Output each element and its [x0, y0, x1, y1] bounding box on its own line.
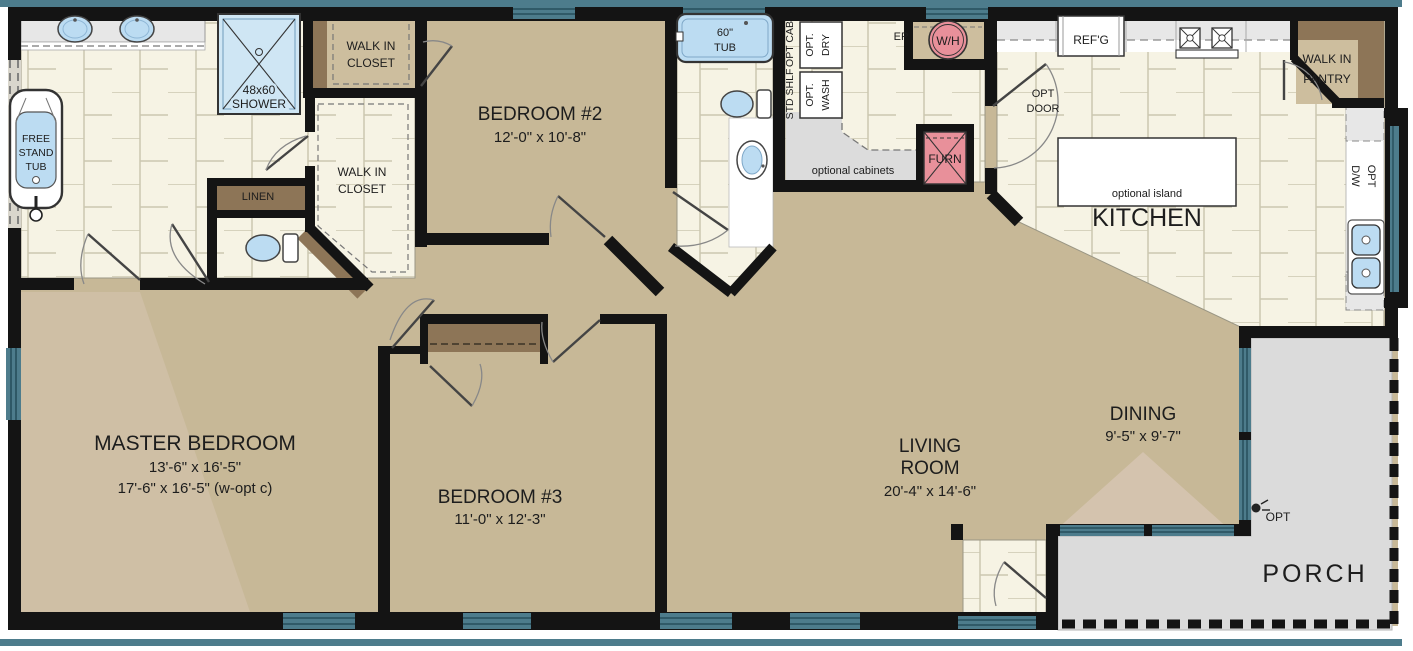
window-living-bottom-2: [790, 613, 860, 629]
window-bedroom3-bottom: [463, 613, 531, 629]
bedroom3-closet-shelf: [428, 324, 540, 352]
living-room-label-1: LIVING: [899, 436, 961, 457]
window-kitchen-bay: [1390, 126, 1399, 292]
opt-door-label-1: OPT: [1032, 88, 1055, 100]
bottom-eave-strip: [0, 639, 1402, 646]
tub60-label-2: TUB: [714, 42, 736, 54]
pantry-label-1: WALK IN: [1303, 52, 1352, 66]
window-dining-right-2: [1239, 440, 1251, 520]
window-dining-right-1: [1239, 348, 1251, 432]
master-bedroom-label: MASTER BEDROOM: [94, 432, 296, 455]
master-bedroom-dim-opt: 17'-6" x 16'-5" (w-opt c): [118, 480, 273, 497]
tub-label-1: FREE: [22, 133, 50, 145]
vanity-sink-icon-2: [120, 16, 154, 42]
master-bedroom-dim: 13'-6" x 16'-5": [149, 459, 241, 476]
water-heater-label: W/H: [936, 34, 959, 48]
dishwasher-label-1: OPT: [1365, 165, 1377, 188]
opt-wash-label-2: WASH: [820, 79, 832, 110]
tub-label-2: STAND: [19, 147, 54, 159]
std-shlf-label: STD SHLF: [784, 69, 796, 120]
bedroom3-dim: 11'-0" x 12'-3": [454, 511, 545, 528]
vanity-sink-icon-1: [58, 16, 92, 42]
walkin-closet-top-label-1: WALK IN: [347, 39, 396, 53]
opt-wash-label-1: OPT.: [804, 83, 816, 106]
shower-label-2: SHOWER: [232, 97, 286, 111]
shower-label-1: 48x60: [243, 83, 276, 97]
bedroom2-dim: 12'-0" x 10'-8": [494, 129, 586, 146]
window-entry-bottom: [958, 616, 1036, 629]
floor-plan: MASTER BEDROOM 13'-6" x 16'-5" 17'-6" x …: [0, 0, 1413, 646]
porch-label: PORCH: [1262, 560, 1367, 588]
opt-cab-label: OPT CAB: [784, 21, 796, 67]
dishwasher-label-2: D/W: [1349, 165, 1361, 187]
tub-label-3: TUB: [26, 161, 47, 173]
opt-door-label-2: DOOR: [1027, 103, 1060, 115]
walkin-closet-top-label-2: CLOSET: [347, 56, 396, 70]
walkin-closet-main-label-2: CLOSET: [338, 182, 387, 196]
window-living-bottom-1: [660, 613, 732, 629]
walkin-closet-main-label-1: WALK IN: [338, 165, 387, 179]
pantry-shelf-right: [1358, 40, 1384, 104]
optional-island-label: optional island: [1112, 188, 1182, 200]
window-bedroom2-top: [513, 4, 575, 19]
fridge-label: REF'G: [1073, 33, 1109, 47]
window-living-porch-1: [1060, 525, 1144, 536]
tub60-label-1: 60": [717, 27, 733, 39]
linen-label: LINEN: [242, 191, 274, 203]
ep-label: EP: [894, 31, 909, 43]
dining-label: DINING: [1110, 404, 1177, 425]
window-master-bottom: [283, 613, 355, 629]
window-utility-top: [926, 4, 988, 19]
floor-plan-page: MASTER BEDROOM 13'-6" x 16'-5" 17'-6" x …: [0, 0, 1413, 646]
living-room-label-2: ROOM: [900, 458, 959, 479]
kitchen-label: KITCHEN: [1092, 204, 1202, 232]
opt-dry-label-2: DRY: [820, 34, 832, 56]
opt-dry-label-1: OPT.: [804, 33, 816, 56]
window-living-porch-2: [1152, 525, 1234, 536]
dining-dim: 9'-5" x 9'-7": [1105, 428, 1181, 445]
pedestal-sink-icon-bath2: [737, 141, 767, 179]
furnace-label: FURN: [928, 152, 961, 166]
toilet-icon-bath2: [721, 90, 771, 118]
bath2-vanity-counter: [729, 118, 773, 247]
porch-opt-label: OPT: [1266, 510, 1291, 524]
optional-cabinets-label: optional cabinets: [812, 165, 895, 177]
toilet-icon-master: [246, 234, 298, 262]
pantry-label-2: PANTRY: [1303, 72, 1351, 86]
bedroom2-label: BEDROOM #2: [478, 104, 603, 125]
kitchen-sink-icon: [1348, 220, 1384, 294]
entry-floor: [963, 540, 1046, 614]
living-room-dim: 20'-4" x 14'-6": [884, 483, 976, 500]
bedroom3-label: BEDROOM #3: [438, 487, 563, 508]
window-master-left: [6, 348, 21, 420]
